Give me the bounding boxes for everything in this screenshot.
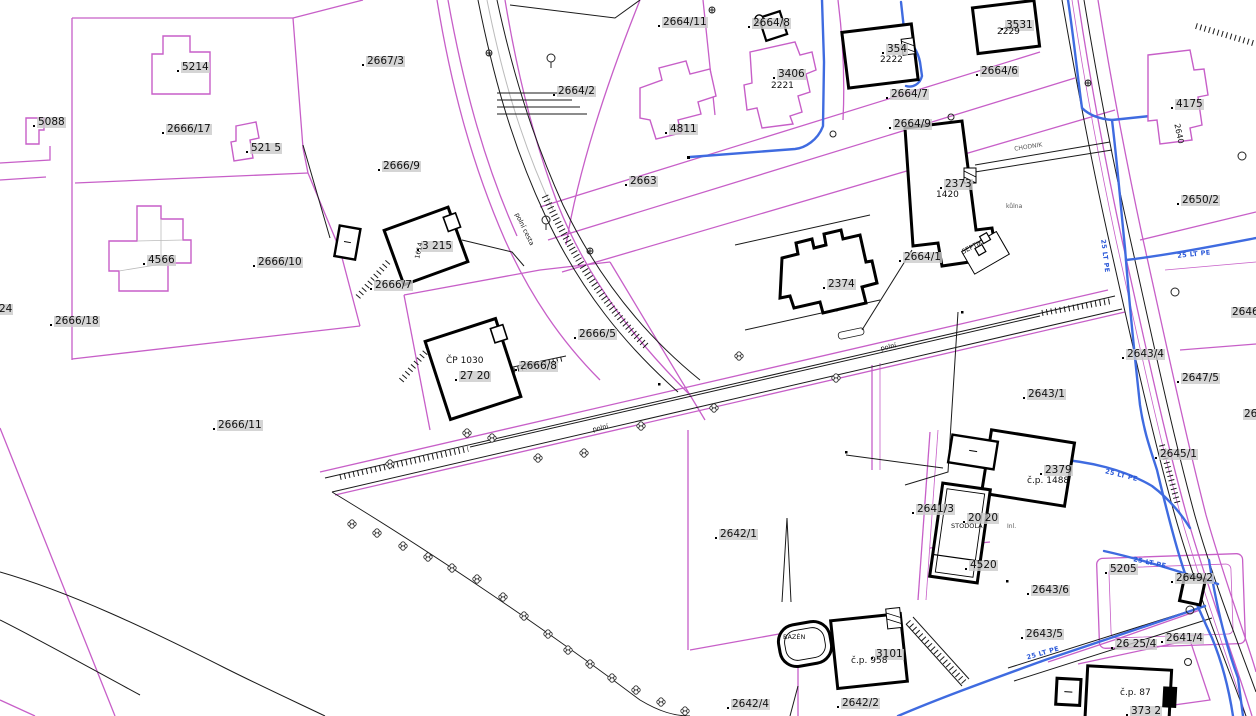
map-label: 373 2: [1130, 706, 1162, 716]
map-label: č.p. 1488: [1026, 477, 1070, 486]
map-labels-layer: 521450882666/17521 52667/32666/92664/112…: [0, 0, 1256, 716]
map-label: 2664/2: [557, 86, 596, 97]
map-label: 2645/1: [1159, 449, 1198, 460]
map-label: 521 5: [250, 143, 282, 154]
map-label: 4566: [147, 255, 176, 266]
map-label: kůlna: [1005, 204, 1023, 210]
map-label: 2649/2: [1175, 573, 1214, 584]
map-label: 2642/1: [719, 529, 758, 540]
map-label: 2664/11: [662, 17, 708, 28]
cadastral-map-canvas[interactable]: 521450882666/17521 52667/32666/92664/112…: [0, 0, 1256, 716]
map-label: 2666/11: [217, 420, 263, 431]
map-label: STODOLA: [950, 523, 984, 530]
map-label: 3406: [777, 69, 806, 80]
map-label: 2664/8: [752, 18, 791, 29]
map-label: SEPTIK: [960, 239, 985, 256]
map-label: 5214: [181, 62, 210, 73]
map-label: 354: [886, 44, 908, 55]
map-label: 1420: [935, 191, 960, 200]
map-label: 25 LT PE: [1025, 645, 1061, 661]
map-label: polní cesta: [513, 211, 536, 248]
map-label: 4811: [669, 124, 698, 135]
map-label: CHODNIK: [1013, 142, 1044, 153]
map-label: 2642/2: [841, 698, 880, 709]
map-label: 5205: [1109, 564, 1138, 575]
map-label: 2643/4: [1126, 349, 1165, 360]
map-label: 25 LT PE: [1176, 249, 1212, 259]
map-label: 25 LT PE: [1103, 468, 1139, 483]
map-label: č.p. 87: [1119, 689, 1152, 698]
map-label: 2646/1: [1231, 307, 1256, 318]
map-label: 2664/6: [980, 66, 1019, 77]
map-label: 2664/7: [890, 89, 929, 100]
map-label: 2666/18: [54, 316, 100, 327]
map-label: 24: [0, 304, 13, 315]
map-label: 4520: [969, 560, 998, 571]
map-label: 26 25/4: [1115, 639, 1157, 650]
map-label: 2641/3: [916, 504, 955, 515]
map-label: ČP 1030: [445, 357, 484, 366]
map-label: 2221: [770, 82, 795, 91]
map-label: polní: [591, 423, 610, 434]
map-label: 2666/5: [578, 329, 617, 340]
map-label: 4175: [1175, 99, 1204, 110]
map-label: 27 20: [459, 371, 491, 382]
map-label: 2222: [879, 56, 904, 65]
map-label: 2643/6: [1031, 585, 1070, 596]
map-label: 2667/3: [366, 56, 405, 67]
map-label: 2666/10: [257, 257, 303, 268]
map-label: č.p. 958: [850, 657, 888, 666]
map-label: 2647/5: [1181, 373, 1220, 384]
map-label: 2641/4: [1165, 633, 1204, 644]
map-label: 2643/1: [1027, 389, 1066, 400]
map-label: 2229: [996, 28, 1021, 37]
map-label: polní: [879, 342, 898, 353]
map-label: 2666/7: [374, 280, 413, 291]
map-label: Inl.: [1006, 524, 1017, 530]
map-label: 2642/4: [731, 699, 770, 710]
map-label: 2374: [827, 279, 856, 290]
map-label: BAZÉN: [782, 634, 806, 641]
map-label: 2666/8: [519, 361, 558, 372]
map-label: 2640: [1172, 122, 1185, 146]
map-label: 2379: [1044, 465, 1073, 476]
map-label: 3 215: [421, 241, 453, 252]
map-label: 26 4: [1243, 409, 1256, 420]
map-label: 25 LT PE: [1099, 238, 1110, 274]
map-label: 2373: [944, 179, 973, 190]
map-label: 2663: [629, 176, 658, 187]
map-label: 2664/1: [903, 252, 942, 263]
map-label: 2643/5: [1025, 629, 1064, 640]
map-label: 2650/2: [1181, 195, 1220, 206]
map-label: 2666/9: [382, 161, 421, 172]
map-label: 5088: [37, 117, 66, 128]
map-label: 2664/9: [893, 119, 932, 130]
map-label: 2666/17: [166, 124, 212, 135]
